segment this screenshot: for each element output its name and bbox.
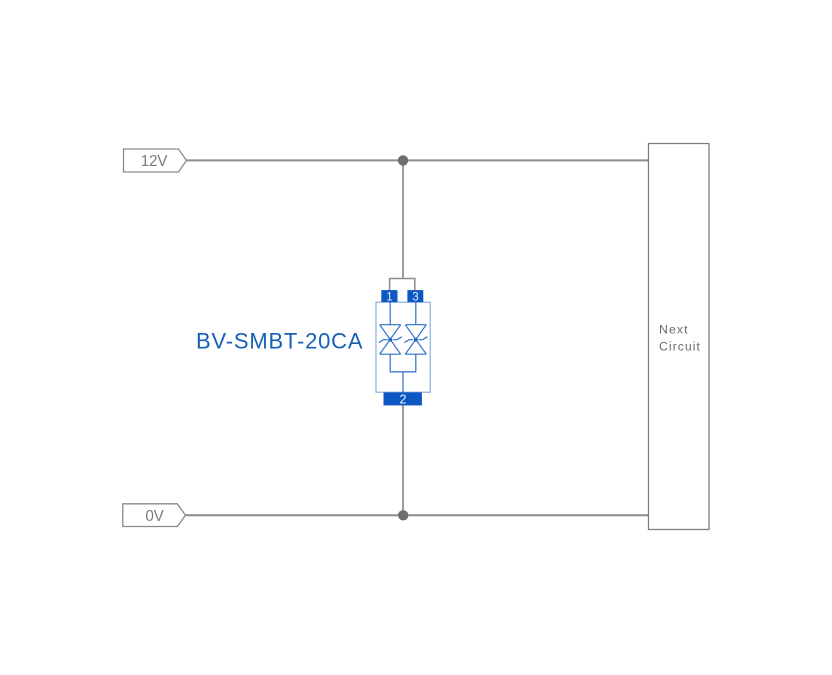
- svg-text:BV-SMBT-20CA: BV-SMBT-20CA: [196, 329, 363, 354]
- svg-text:Circuit: Circuit: [659, 340, 701, 354]
- svg-text:2: 2: [400, 392, 407, 406]
- svg-text:Next: Next: [659, 323, 689, 337]
- svg-text:12V: 12V: [141, 153, 169, 170]
- svg-text:1: 1: [386, 291, 392, 303]
- svg-text:3: 3: [412, 291, 418, 303]
- svg-text:0V: 0V: [145, 508, 164, 525]
